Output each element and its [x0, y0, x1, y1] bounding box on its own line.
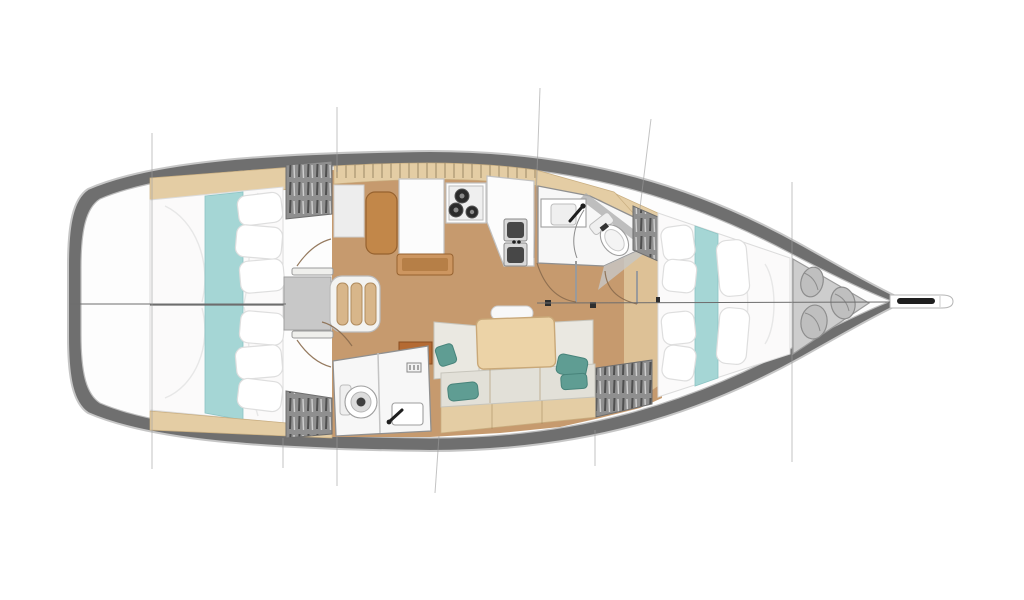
locker-cabinet [334, 185, 364, 237]
accent-pillow [447, 381, 479, 401]
pillow [661, 344, 697, 382]
accent-pillow [561, 373, 588, 390]
hanging-locker-starboard [286, 391, 332, 438]
companionway [284, 276, 380, 332]
step [337, 283, 348, 325]
nav-seat [366, 192, 397, 254]
pillow [236, 377, 283, 412]
aft-head [333, 346, 431, 436]
anchor-roller-icon [897, 298, 935, 304]
pillow [716, 239, 751, 297]
bed-runner [695, 226, 718, 386]
pillow [660, 310, 696, 345]
pillow [235, 224, 284, 260]
pillow [239, 310, 286, 346]
pillow [661, 258, 697, 293]
step [351, 283, 362, 325]
pillow [236, 191, 283, 226]
door-leaf [292, 268, 333, 275]
pillow [660, 224, 696, 262]
pillow [235, 344, 284, 380]
door-leaf [292, 331, 333, 338]
door-stop [656, 297, 660, 303]
hanging-locker-port [286, 161, 332, 219]
pillow [239, 258, 286, 294]
chart-table [399, 179, 444, 255]
yacht-floorplan-page [0, 0, 1024, 600]
yacht-floorplan-diagram [0, 0, 1024, 600]
step [365, 283, 376, 325]
saloon-table [476, 317, 556, 370]
pillow [716, 307, 751, 365]
